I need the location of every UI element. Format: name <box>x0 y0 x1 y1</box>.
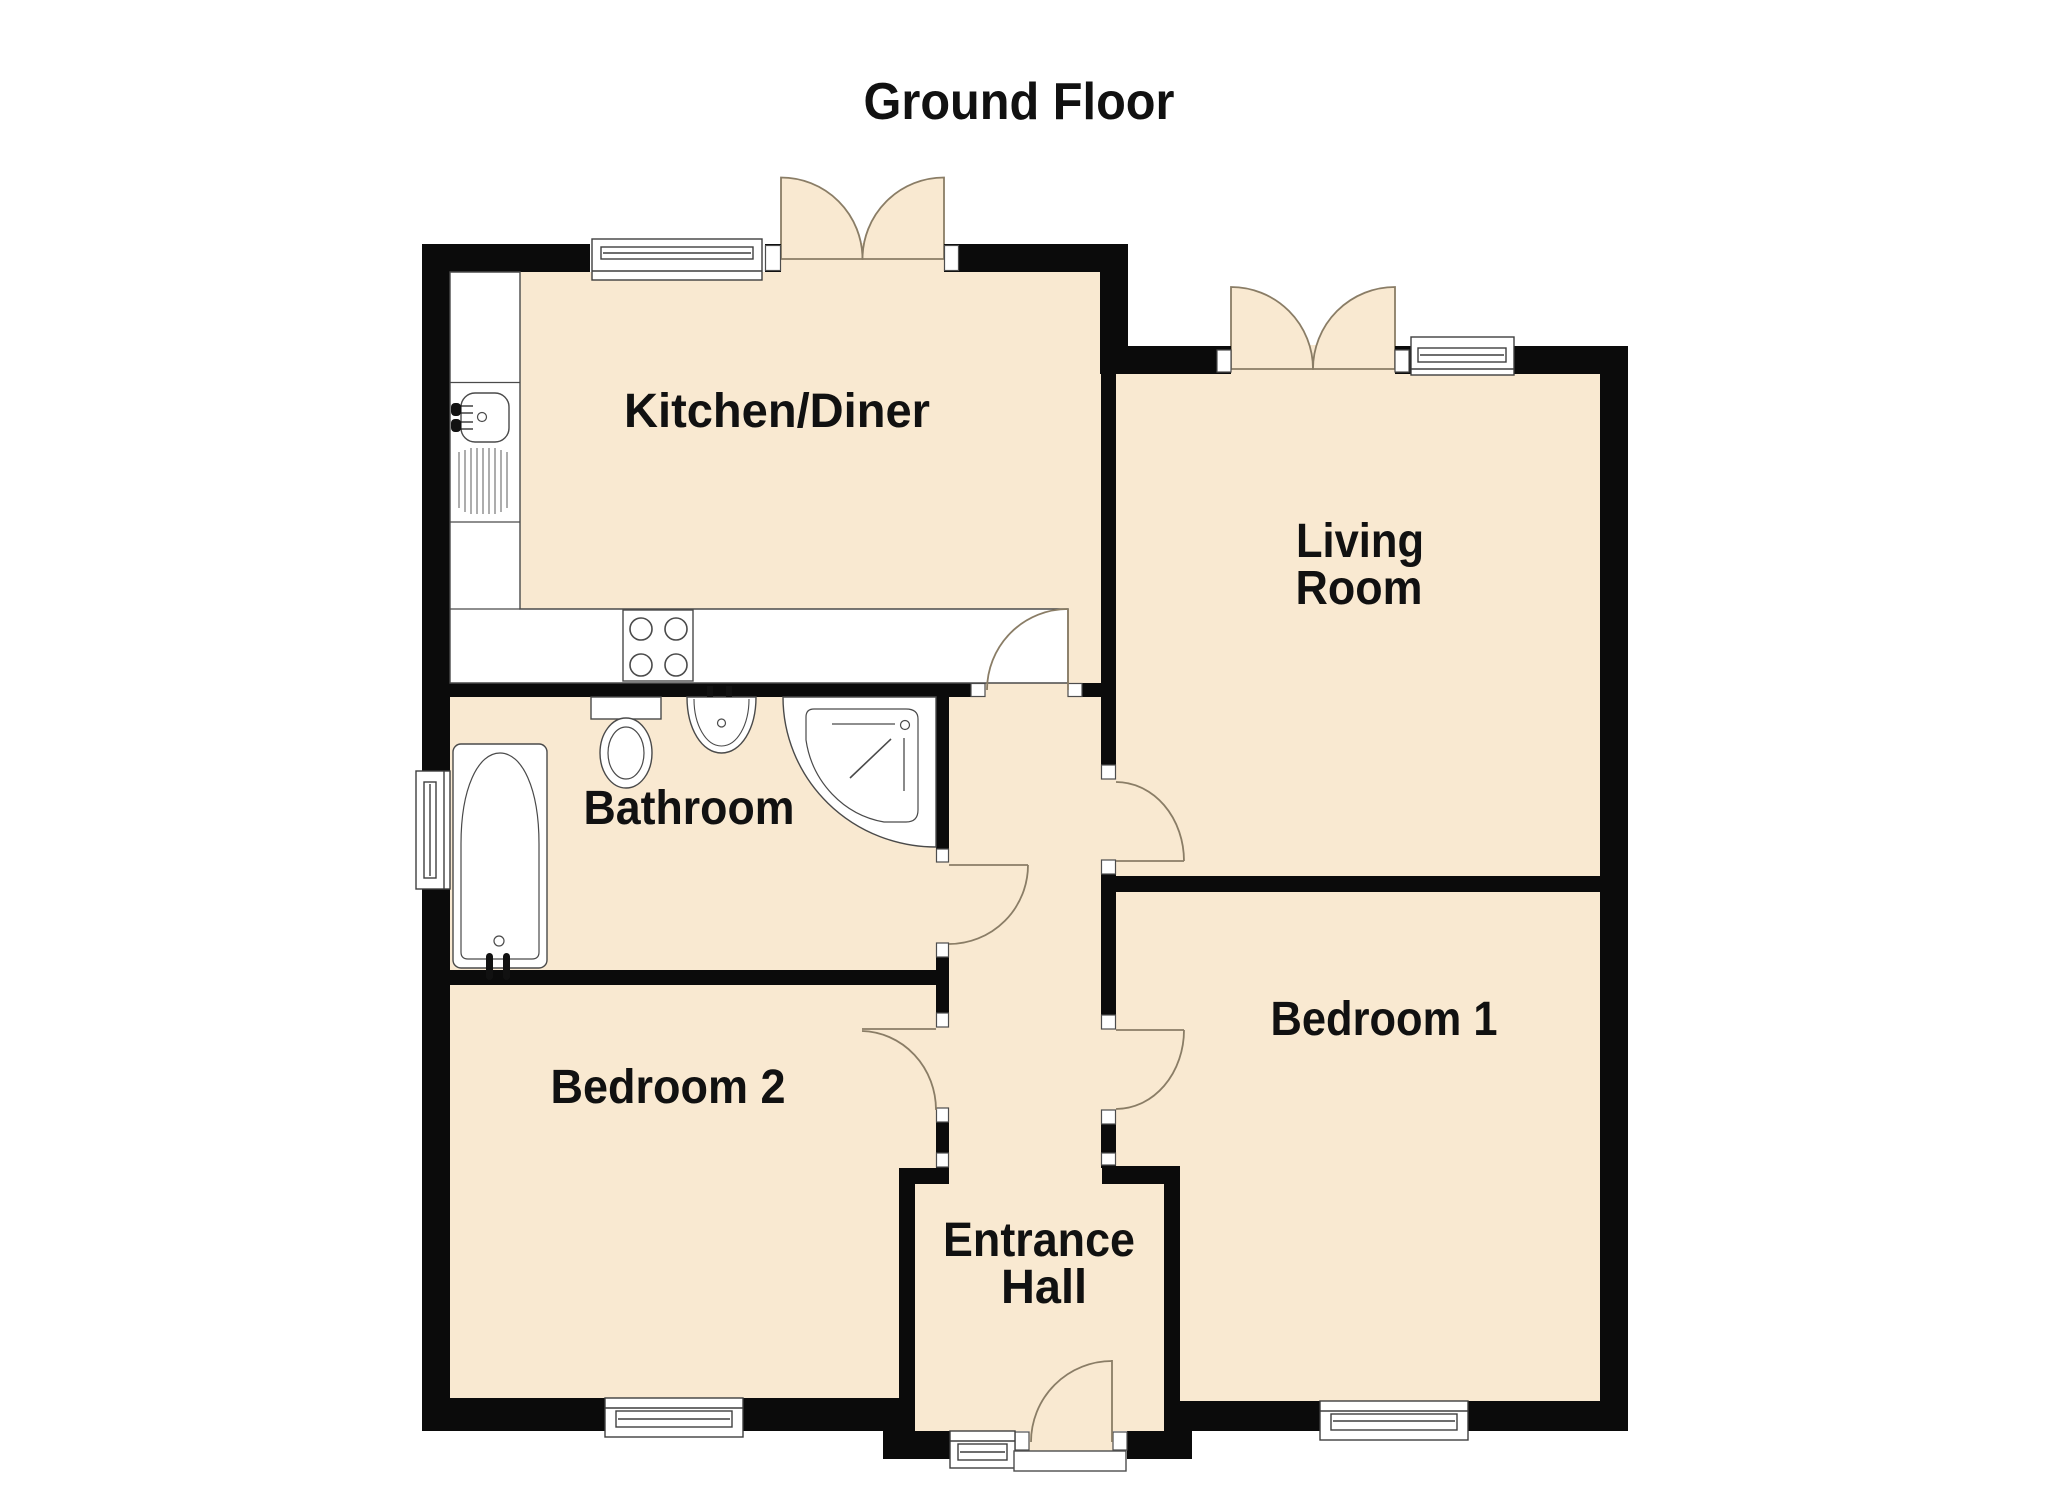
svg-text:Hall: Hall <box>1001 1261 1087 1314</box>
svg-text:Ground Floor: Ground Floor <box>864 73 1175 131</box>
svg-text:Living: Living <box>1296 515 1424 568</box>
svg-text:Room: Room <box>1296 562 1423 615</box>
svg-text:Entrance: Entrance <box>943 1214 1135 1267</box>
svg-text:Bathroom: Bathroom <box>584 782 795 835</box>
svg-text:Bedroom 2: Bedroom 2 <box>551 1061 786 1114</box>
svg-text:Kitchen/Diner: Kitchen/Diner <box>624 385 930 438</box>
svg-text:Bedroom 1: Bedroom 1 <box>1271 993 1498 1046</box>
